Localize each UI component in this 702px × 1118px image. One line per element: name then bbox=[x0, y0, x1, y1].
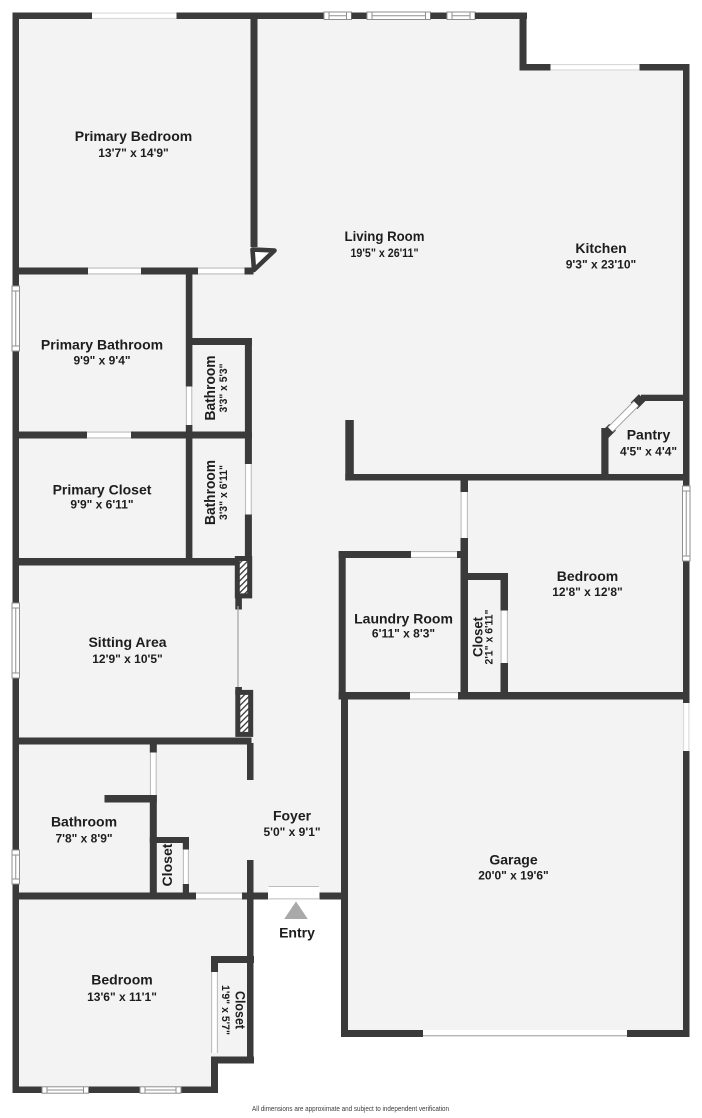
svg-text:Bathroom: Bathroom bbox=[203, 356, 219, 421]
svg-text:Primary Closet: Primary Closet bbox=[53, 482, 152, 498]
svg-text:Bedroom: Bedroom bbox=[91, 972, 152, 988]
svg-text:Closet: Closet bbox=[233, 991, 248, 1029]
svg-text:Kitchen: Kitchen bbox=[575, 240, 626, 256]
svg-text:Bedroom: Bedroom bbox=[557, 568, 618, 584]
svg-text:Living Room: Living Room bbox=[345, 228, 425, 244]
svg-text:All dimensions are approximate: All dimensions are approximate and subje… bbox=[252, 1104, 449, 1113]
svg-text:9'3" x 23'10": 9'3" x 23'10" bbox=[566, 258, 636, 272]
svg-text:Closet: Closet bbox=[160, 843, 175, 887]
svg-text:12'8" x 12'8": 12'8" x 12'8" bbox=[552, 585, 622, 599]
svg-text:2'1" x 6'11": 2'1" x 6'11" bbox=[483, 610, 495, 665]
svg-text:Pantry: Pantry bbox=[627, 427, 671, 443]
svg-text:1'9" x 5'7": 1'9" x 5'7" bbox=[219, 985, 231, 1035]
svg-text:4'5" x 4'4": 4'5" x 4'4" bbox=[620, 445, 677, 459]
svg-text:Primary Bedroom: Primary Bedroom bbox=[75, 128, 192, 144]
svg-text:12'9" x 10'5": 12'9" x 10'5" bbox=[92, 652, 162, 666]
svg-text:6'11" x 8'3": 6'11" x 8'3" bbox=[372, 627, 435, 641]
svg-text:Garage: Garage bbox=[489, 852, 537, 868]
svg-text:Foyer: Foyer bbox=[273, 808, 312, 824]
svg-text:5'0" x 9'1": 5'0" x 9'1" bbox=[263, 825, 320, 839]
svg-text:Laundry Room: Laundry Room bbox=[354, 611, 453, 627]
svg-text:13'6" x 11'1": 13'6" x 11'1" bbox=[87, 990, 157, 1004]
svg-text:3'3" x 6'11": 3'3" x 6'11" bbox=[218, 465, 230, 520]
svg-text:9'9" x 6'11": 9'9" x 6'11" bbox=[70, 498, 133, 512]
svg-text:Primary Bathroom: Primary Bathroom bbox=[41, 337, 163, 353]
svg-text:Bathroom: Bathroom bbox=[51, 814, 117, 830]
svg-text:3'3" x 5'3": 3'3" x 5'3" bbox=[218, 364, 230, 413]
svg-text:Entry: Entry bbox=[279, 925, 315, 941]
svg-text:19'5" x 26'11": 19'5" x 26'11" bbox=[351, 246, 419, 260]
svg-text:9'9" x 9'4": 9'9" x 9'4" bbox=[73, 354, 130, 368]
svg-text:7'8" x 8'9": 7'8" x 8'9" bbox=[55, 832, 112, 846]
svg-text:Sitting Area: Sitting Area bbox=[88, 634, 166, 650]
svg-text:Bathroom: Bathroom bbox=[203, 460, 219, 525]
svg-text:20'0" x 19'6": 20'0" x 19'6" bbox=[478, 869, 548, 883]
svg-text:13'7" x 14'9": 13'7" x 14'9" bbox=[98, 146, 168, 160]
